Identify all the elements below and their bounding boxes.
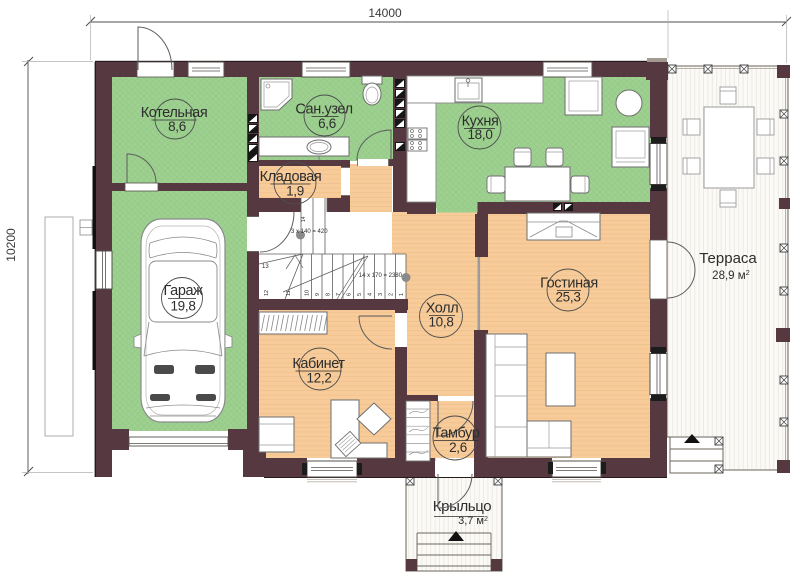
svg-text:10: 10 [305,290,311,296]
svg-text:18,0: 18,0 [467,127,492,142]
svg-text:Гараж: Гараж [164,283,204,299]
svg-text:3,7 м2: 3,7 м2 [458,515,488,527]
svg-text:13: 13 [262,264,269,270]
svg-text:9: 9 [315,293,321,296]
svg-text:8: 8 [326,293,332,296]
svg-text:11: 11 [286,290,292,296]
svg-text:3 x 140 = 420: 3 x 140 = 420 [291,229,328,235]
svg-text:14 x 170 = 2380: 14 x 170 = 2380 [359,273,403,279]
svg-text:19,8: 19,8 [170,299,195,314]
svg-text:4: 4 [368,293,374,296]
svg-text:8,6: 8,6 [168,119,186,134]
svg-text:6,6: 6,6 [318,116,336,131]
svg-text:1,9: 1,9 [286,184,304,199]
svg-text:14000: 14000 [368,6,402,20]
svg-text:5: 5 [357,293,363,296]
svg-text:7: 7 [336,293,342,296]
svg-text:10,8: 10,8 [428,315,453,330]
svg-text:1: 1 [399,293,405,296]
svg-text:2,6: 2,6 [449,440,467,455]
svg-text:6: 6 [347,293,353,296]
svg-text:Терраса: Терраса [699,250,757,267]
svg-text:2: 2 [389,293,395,296]
svg-text:28,9 м2: 28,9 м2 [712,268,750,282]
svg-text:Крыльцо: Крыльцо [433,498,491,515]
svg-text:14: 14 [301,216,307,222]
svg-text:12,2: 12,2 [306,371,331,386]
svg-text:10200: 10200 [4,228,18,262]
svg-text:3: 3 [378,293,384,296]
svg-text:25,3: 25,3 [555,290,580,305]
svg-text:12: 12 [264,290,270,296]
